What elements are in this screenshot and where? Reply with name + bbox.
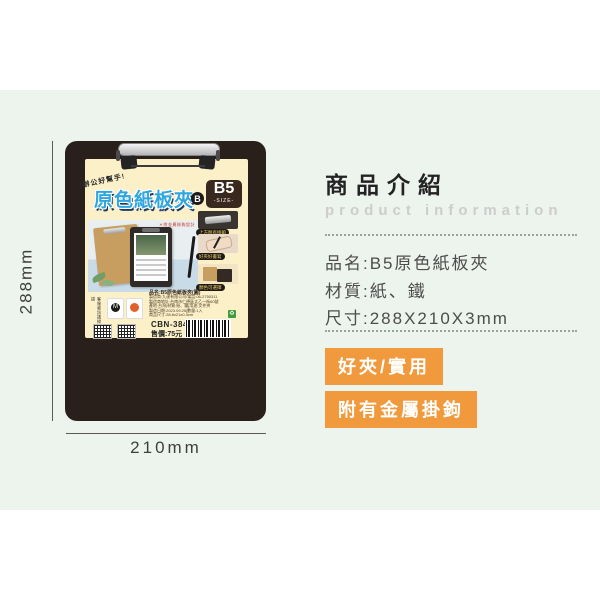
clip-wire (131, 165, 205, 167)
clip-prong (216, 150, 220, 161)
brand-logo-icon (130, 303, 139, 312)
barcode (185, 319, 231, 338)
width-dimension-label: 210mm (66, 438, 266, 458)
feature-caption: 好夾好書寫 (196, 253, 225, 260)
width-dimension-line (66, 433, 266, 434)
feature-thumb-hook (198, 211, 238, 229)
size-caption: -SIZE- (206, 198, 242, 204)
grade-badge: B (191, 192, 204, 205)
page: 288mm 210mm !辦公好幫手! 原色紙板夾 B B5 -SIZE- ＊附… (0, 0, 600, 600)
section-title: 商品介紹 (325, 166, 449, 200)
size-value: B5 (206, 180, 242, 198)
brand-badge (126, 298, 143, 319)
feature-thumb-writing (198, 234, 238, 253)
product-photo: ＊附金屬掛鉤設計 (88, 220, 198, 292)
dotted-divider (325, 234, 577, 236)
spec-detail-line: 商品尺寸:28.8x21x0.3cm (149, 313, 237, 318)
brand-logo-icon: M (111, 303, 120, 312)
metal-clip-icon (103, 227, 125, 234)
landscape-photo-graphic (136, 235, 166, 255)
spec-row-name: 品名:B5原色紙板夾 (325, 249, 490, 274)
metal-clip-icon (142, 228, 160, 232)
clip-clamp (120, 155, 137, 170)
recycle-icon: ♻ (228, 310, 236, 318)
metal-clip-icon (205, 215, 232, 224)
qr-code-icon (117, 324, 136, 339)
spec-detail-lines: 製造商:九達有限公司/電話:06-2750311 製造商地址:台南市仁德區太乙一… (149, 295, 237, 318)
pen-graphic (187, 236, 195, 278)
text-line-graphic (136, 259, 166, 261)
feature-badge: 附有金屬掛鉤 (325, 391, 477, 428)
dark-color-swatch (217, 269, 232, 282)
black-clipboard-graphic (130, 227, 172, 287)
feature-thumb-colors (198, 264, 238, 284)
product-title: 原色紙板夾 (94, 185, 194, 212)
text-line-graphic (136, 264, 166, 266)
height-dimension-label: 288mm (2, 141, 50, 421)
height-dimension-line (52, 141, 53, 421)
section-subtitle: product information (325, 202, 563, 219)
clip-clamp (198, 155, 215, 170)
qr-code-icon (93, 324, 112, 339)
text-line-graphic (136, 274, 166, 276)
spec-row-size: 尺寸:288X210X3mm (325, 304, 509, 329)
feature-badge: 好夾/實用 (325, 348, 443, 385)
brand-badge: M (107, 298, 124, 319)
spec-row-material: 材質:紙、鐵 (325, 277, 427, 302)
text-line-graphic (136, 269, 166, 271)
dotted-divider (325, 330, 577, 332)
paper-sheet-graphic (134, 233, 168, 281)
packaging-label: !辦公好幫手! 原色紙板夾 B B5 -SIZE- ＊附金屬掛鉤設計 (85, 159, 248, 338)
metal-clip-icon (118, 143, 220, 156)
service-note: 客服資訊請掃描 (90, 297, 102, 327)
kraft-color-swatch (203, 267, 217, 281)
price-text: 售價:75元 (151, 329, 182, 339)
clip-prong (116, 150, 120, 161)
size-box: B5 -SIZE- (206, 180, 242, 208)
